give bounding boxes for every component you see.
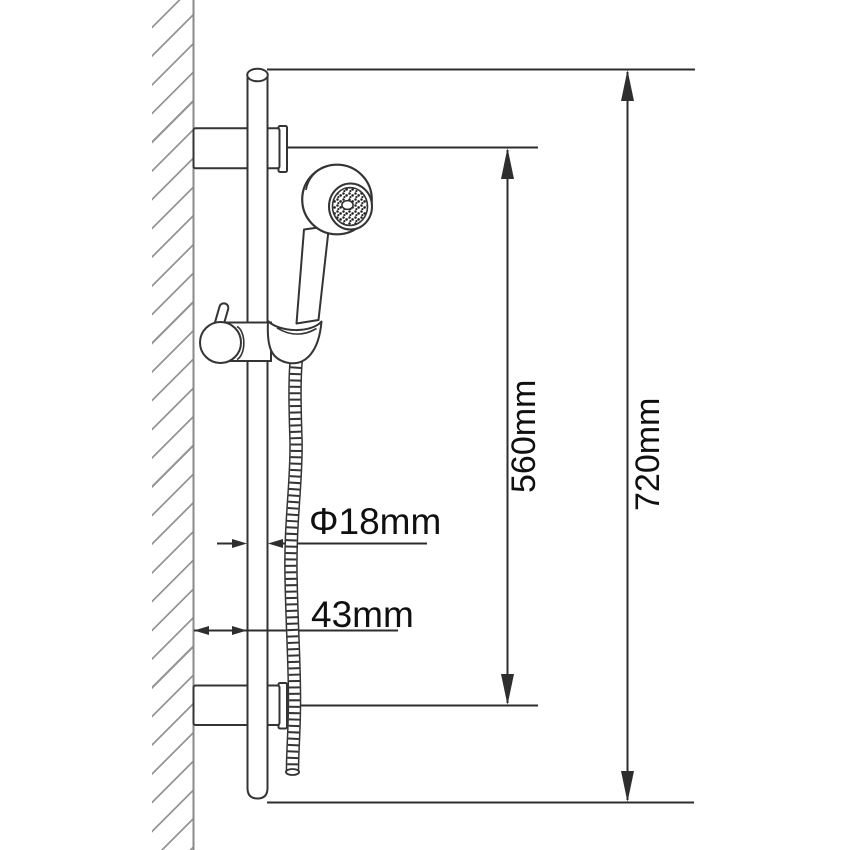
- dimension-label-bracket-spacing: 560mm: [507, 380, 541, 493]
- arrowhead-left-icon: [194, 626, 209, 635]
- bar-top-cap: [247, 69, 268, 82]
- arrowhead-right-icon: [232, 539, 247, 548]
- spray-face-center: [342, 201, 353, 210]
- shower-hose: [286, 354, 299, 775]
- arrowhead-up-icon: [501, 148, 514, 179]
- slide-bar: [247, 69, 268, 799]
- dimension-label-overall-length: 720mm: [631, 398, 665, 511]
- wall-bracket-lower: [194, 683, 288, 729]
- bar-body: [248, 77, 268, 799]
- arrowhead-down-icon: [621, 771, 634, 802]
- technical-drawing-canvas: Φ18mm 43mm 560mm 720mm: [0, 0, 850, 850]
- dimension-label-wall-offset: 43mm: [311, 596, 414, 633]
- hand-shower-head: [302, 165, 372, 235]
- arrowhead-down-icon: [501, 674, 514, 705]
- hose-end-cap: [286, 769, 299, 775]
- slider-knob: [200, 322, 241, 363]
- shower-handle: [297, 226, 330, 324]
- drawing-svg: [0, 0, 850, 850]
- arrowhead-up-icon: [621, 70, 634, 101]
- handle-cup: [268, 321, 322, 363]
- arrowhead-left-icon: [268, 539, 283, 548]
- arrowhead-right-icon: [232, 626, 247, 635]
- dimension-label-bar-diameter: Φ18mm: [309, 503, 441, 540]
- wall-bracket-upper: [194, 126, 288, 172]
